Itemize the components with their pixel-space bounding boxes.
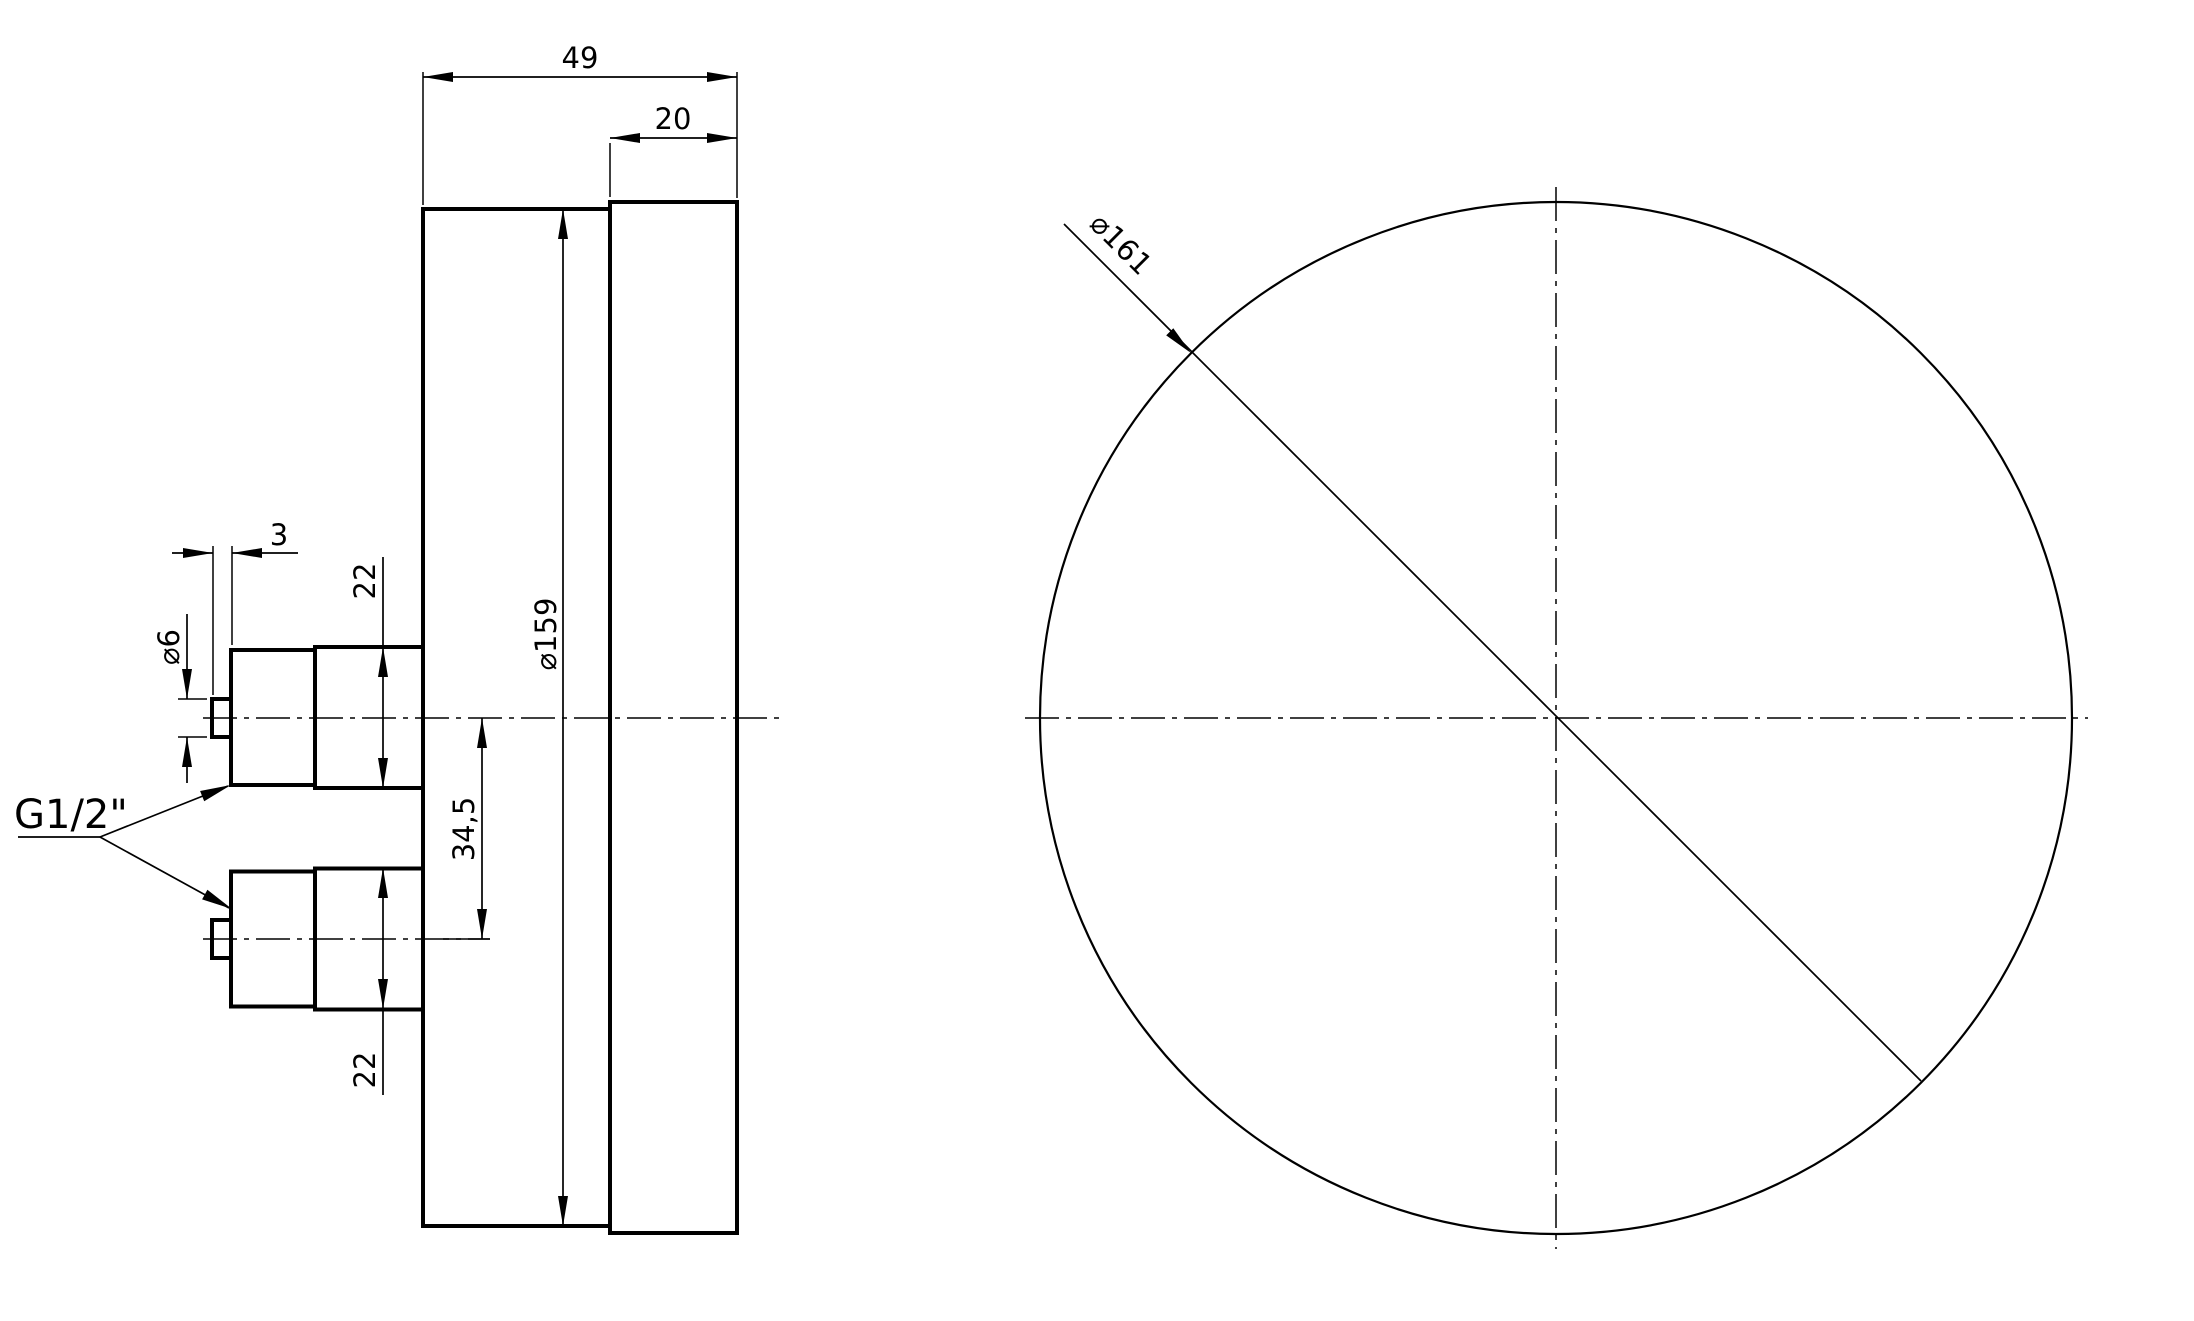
front-view: ⌀161 bbox=[1025, 187, 2088, 1249]
drawing-canvas: 49 20 ⌀159 34,5 bbox=[0, 0, 2194, 1321]
dimension-outer-diameter: ⌀161 bbox=[1064, 206, 1921, 1081]
dimension-text-3: 3 bbox=[270, 518, 288, 552]
leader-arrowhead-upper bbox=[200, 785, 231, 801]
dimension-text-dia161: ⌀161 bbox=[1083, 206, 1159, 282]
dimension-text-dia159: ⌀159 bbox=[529, 598, 563, 671]
arrowhead-top bbox=[558, 209, 568, 239]
dimension-lower-fitting: 22 bbox=[348, 868, 388, 1095]
arrowhead-right bbox=[232, 548, 262, 558]
arrowhead-left bbox=[183, 548, 213, 558]
dimension-nipple-diameter: ⌀6 bbox=[152, 614, 207, 783]
arrowhead-left bbox=[423, 72, 453, 82]
arrowhead-top bbox=[477, 718, 487, 748]
dimension-text-20: 20 bbox=[655, 102, 692, 136]
side-view: 49 20 ⌀159 34,5 bbox=[14, 41, 782, 1233]
dimension-nipple-length: 3 bbox=[172, 518, 298, 695]
arrowhead-bottom bbox=[558, 1196, 568, 1226]
dimension-text-34-5: 34,5 bbox=[447, 797, 481, 862]
dimension-bezel-depth: 20 bbox=[610, 102, 737, 197]
dimension-text-22-upper: 22 bbox=[348, 563, 382, 600]
arrowhead-top bbox=[378, 647, 388, 677]
dimension-center-offset: 34,5 bbox=[443, 718, 490, 939]
thread-callout: G1/2" bbox=[14, 785, 232, 909]
arrowhead-left bbox=[610, 133, 640, 143]
dimension-text-22-lower: 22 bbox=[348, 1052, 382, 1089]
arrowhead-bottom bbox=[378, 758, 388, 788]
arrowhead-right bbox=[707, 133, 737, 143]
dimension-line-diagonal bbox=[1064, 224, 1921, 1081]
arrowhead-bottom bbox=[378, 979, 388, 1009]
arrowhead-bottom bbox=[182, 737, 192, 767]
arrowhead-bottom bbox=[477, 909, 487, 939]
leader-arrowhead-lower bbox=[202, 890, 232, 909]
arrowhead bbox=[1166, 328, 1191, 353]
arrowhead-top bbox=[182, 669, 192, 699]
dimension-upper-fitting: 22 bbox=[348, 557, 388, 788]
technical-drawing-svg: 49 20 ⌀159 34,5 bbox=[0, 0, 2194, 1321]
arrowhead-right bbox=[707, 72, 737, 82]
thread-label: G1/2" bbox=[14, 792, 128, 838]
arrowhead-top bbox=[378, 868, 388, 898]
dimension-text-dia6: ⌀6 bbox=[152, 629, 186, 665]
dimension-text-49: 49 bbox=[562, 41, 599, 75]
